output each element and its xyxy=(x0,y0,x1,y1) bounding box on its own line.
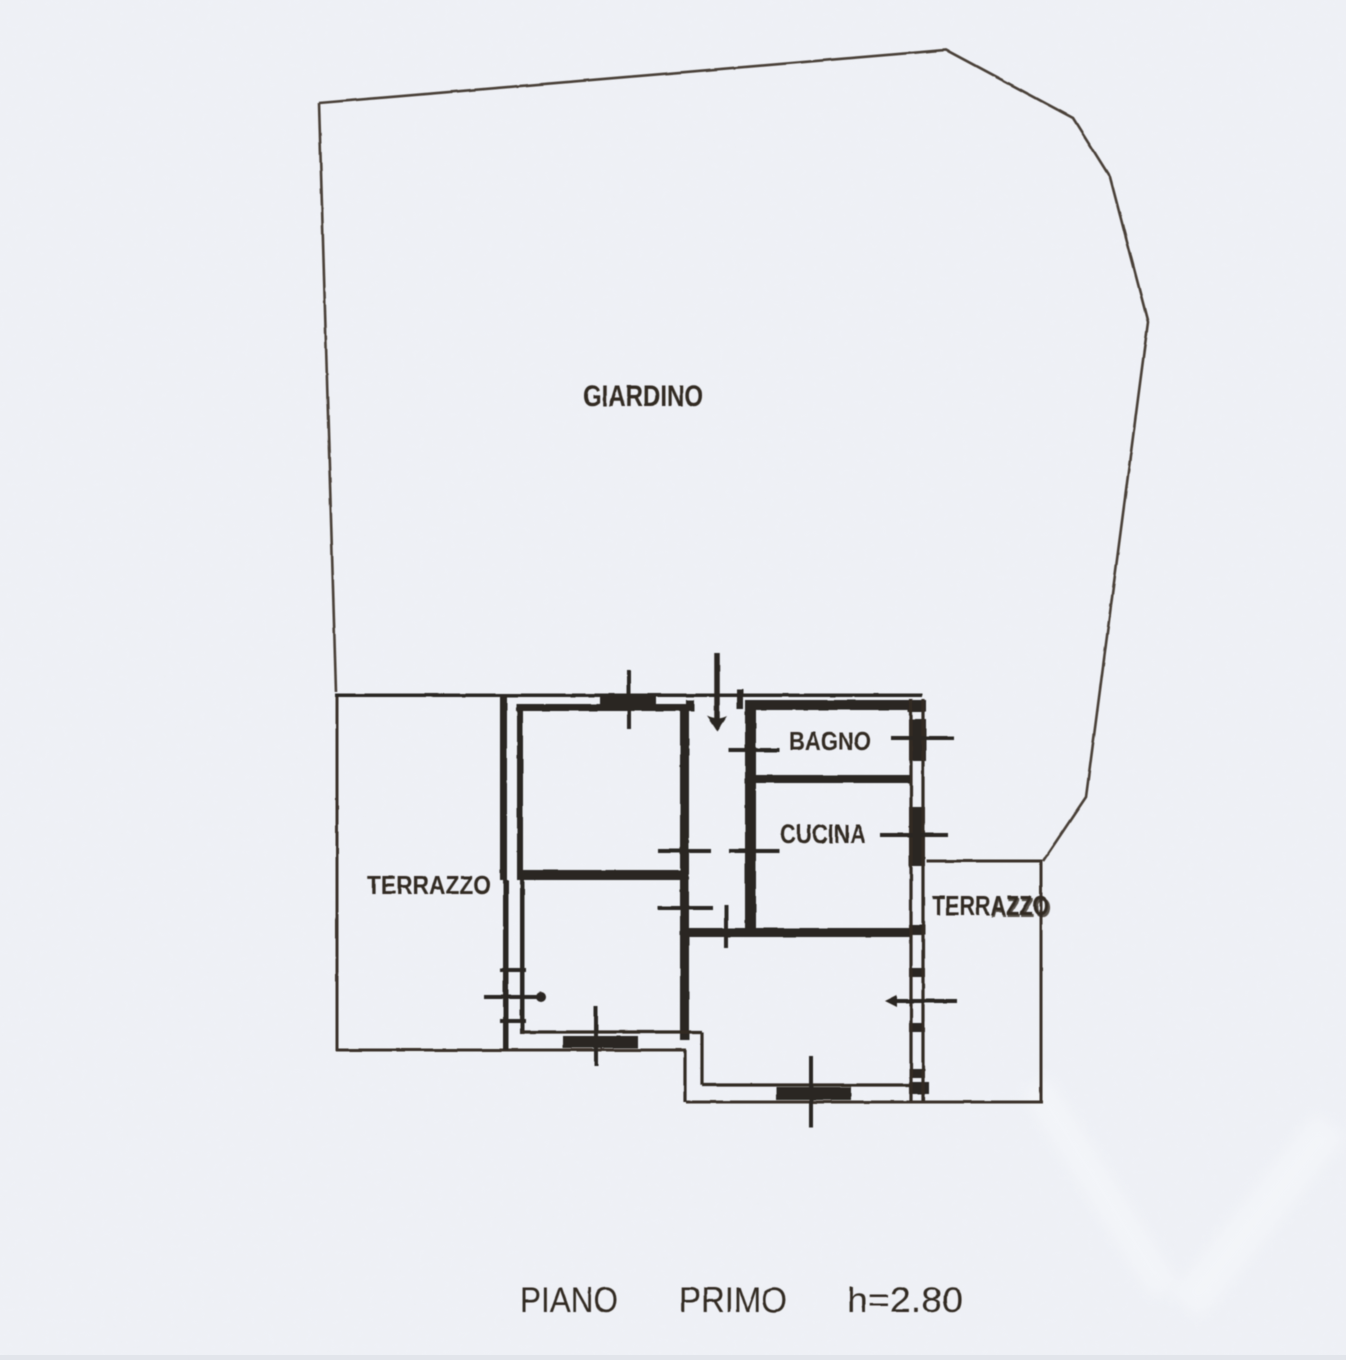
svg-text:GIARDINO: GIARDINO xyxy=(583,380,703,413)
svg-text:CUCINA: CUCINA xyxy=(780,819,866,849)
svg-text:AZZO: AZZO xyxy=(991,892,1051,923)
svg-text:BAGNO: BAGNO xyxy=(789,726,871,756)
svg-text:h=2.80: h=2.80 xyxy=(847,1281,963,1320)
svg-text:PRIMO: PRIMO xyxy=(679,1281,787,1320)
svg-text:PIANO: PIANO xyxy=(520,1281,618,1320)
svg-text:TERRAZZO: TERRAZZO xyxy=(367,870,491,900)
